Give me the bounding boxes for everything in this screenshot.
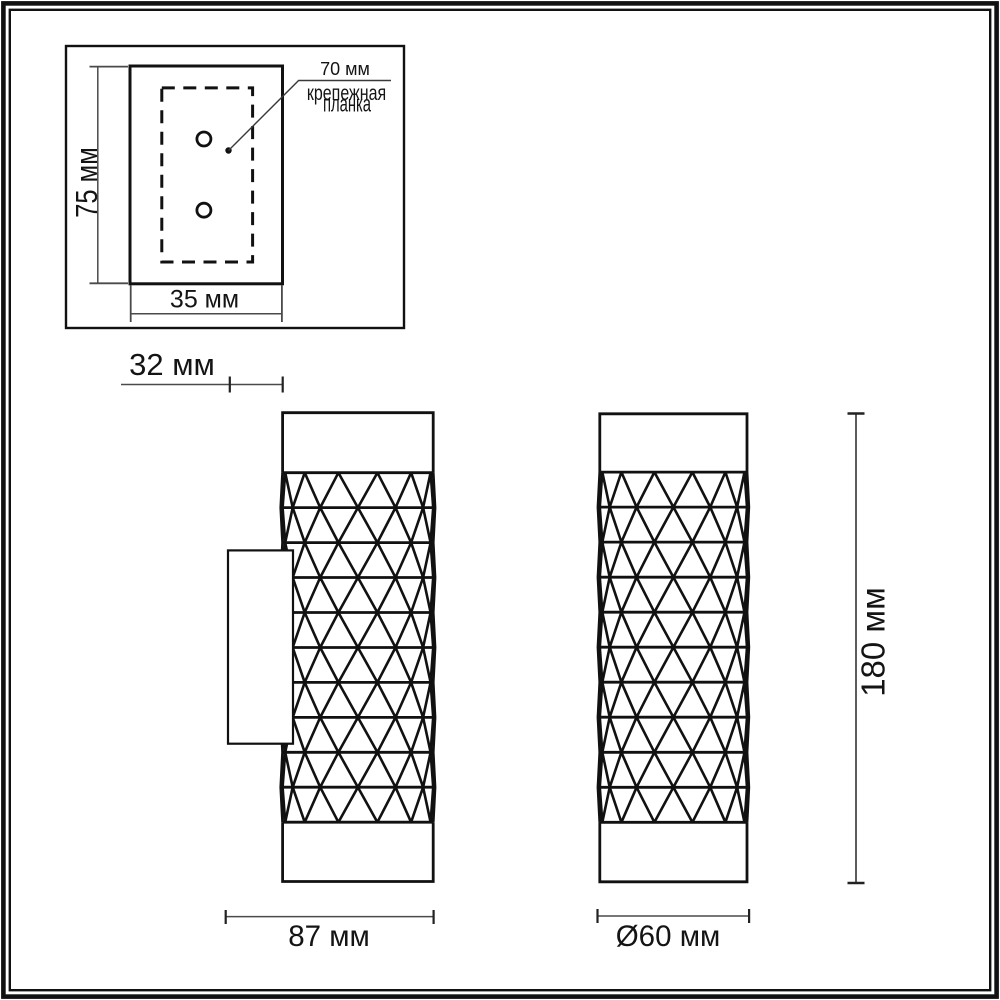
svg-text:180 мм: 180 мм bbox=[855, 587, 892, 697]
svg-text:32 мм: 32 мм bbox=[129, 347, 215, 382]
svg-text:75 мм: 75 мм bbox=[70, 147, 103, 217]
svg-text:87 мм: 87 мм bbox=[288, 920, 370, 953]
svg-text:планка: планка bbox=[323, 92, 371, 117]
svg-text:Ø60 мм: Ø60 мм bbox=[616, 920, 721, 953]
svg-text:70 мм: 70 мм bbox=[320, 59, 370, 79]
svg-text:35 мм: 35 мм bbox=[170, 286, 239, 314]
